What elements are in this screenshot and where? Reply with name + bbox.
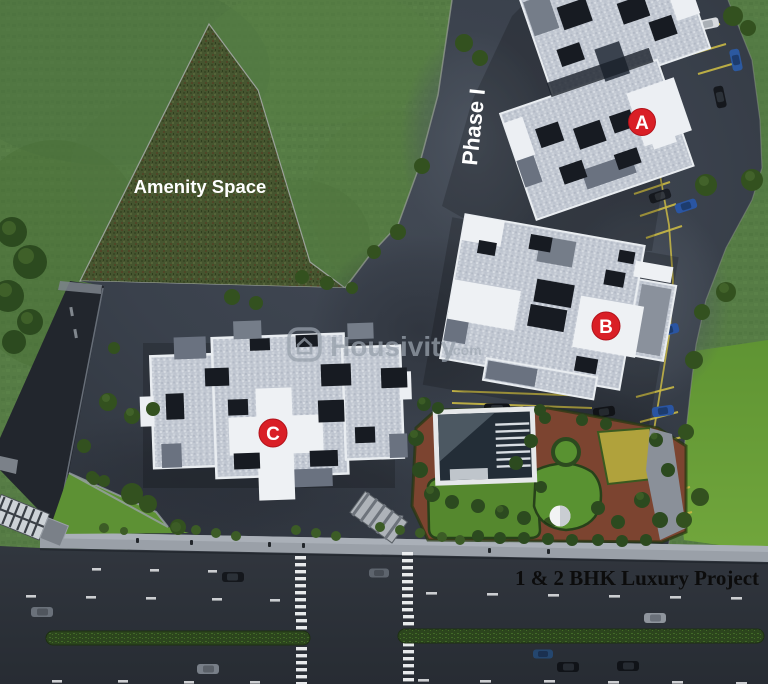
svg-text:1 & 2 BHK Luxury Project: 1 & 2 BHK Luxury Project xyxy=(515,566,759,590)
svg-text:B: B xyxy=(599,317,613,338)
svg-text:C: C xyxy=(266,424,280,445)
svg-text:.com: .com xyxy=(449,342,482,358)
svg-text:A: A xyxy=(635,113,649,134)
svg-text:Amenity Space: Amenity Space xyxy=(134,176,267,197)
svg-text:Housivity: Housivity xyxy=(330,331,456,362)
